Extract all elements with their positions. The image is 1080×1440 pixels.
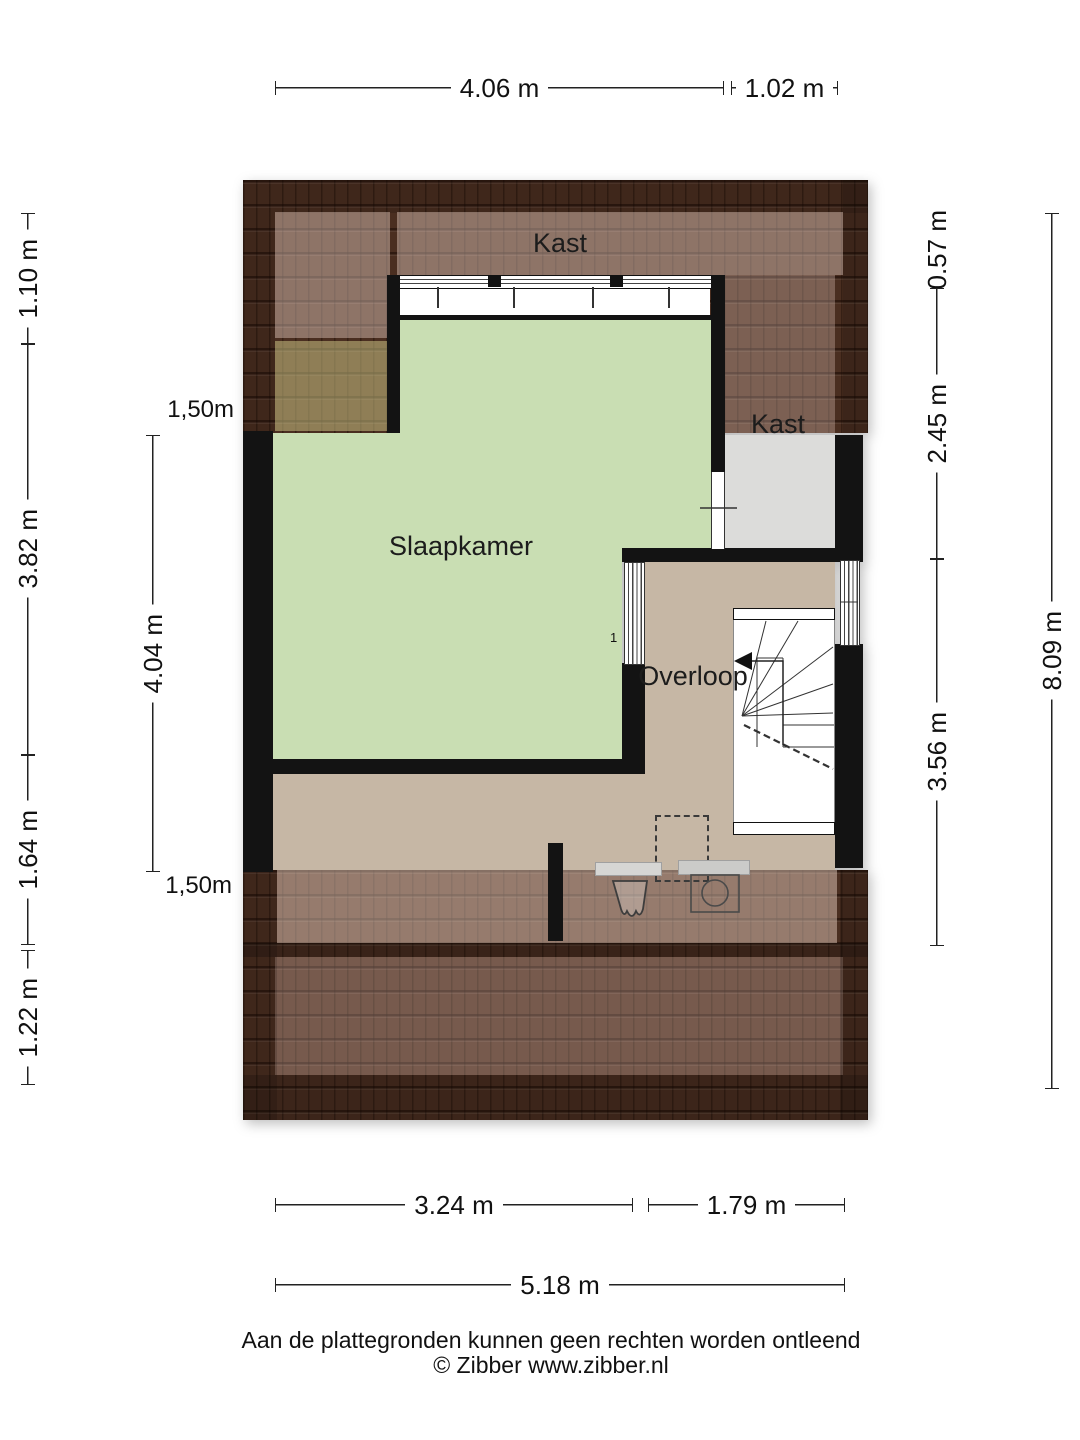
dim-left-2: 3.82 m — [21, 343, 35, 755]
dim-right-1: 0.57 m — [930, 210, 944, 290]
window-right — [840, 560, 860, 646]
floor-plan: Kast Kast Slaapkamer Overloop 1 — [0, 0, 1080, 1440]
dim-left-3: 1.64 m — [21, 755, 35, 945]
roof-top-right-margin — [843, 180, 868, 433]
knee-area-overlay — [275, 341, 387, 431]
window-interior — [624, 562, 645, 665]
roof-bottom-eave-shade — [243, 1075, 868, 1120]
room-label-kast-top: Kast — [500, 230, 620, 257]
room-kast-right-floor — [725, 435, 835, 548]
knee-label-top: 1,50m — [150, 398, 234, 422]
window-top-mullion-2 — [610, 275, 623, 287]
room-slaapkamer-upper — [400, 320, 711, 435]
wall-stub — [548, 843, 563, 941]
dim-right-outer: 8.09 m — [1045, 213, 1059, 1089]
wall-right-outer-upper — [835, 435, 863, 560]
stairs-bottom-landing — [733, 822, 835, 835]
room-slaapkamer-lower — [273, 548, 622, 759]
wall-slaapkamer-south — [273, 759, 645, 774]
window-tick-3 — [592, 287, 594, 308]
door-kast-opening — [711, 472, 725, 549]
dim-top-left: 4.06 m — [275, 81, 724, 95]
wall-right-outer-lower — [835, 644, 863, 868]
washbasin-shelf — [595, 862, 662, 876]
roof-bottom-medium-band — [275, 957, 843, 1075]
stairwell — [733, 608, 835, 835]
dim-bottom-right: 1.79 m — [648, 1198, 845, 1212]
dim-left-4: 1.22 m — [21, 950, 35, 1085]
zibber-copyright: © Zibber www.zibber.nl — [11, 1353, 1080, 1378]
dim-left-inner: 4.04 m — [146, 435, 160, 872]
window-tick-1 — [437, 287, 439, 308]
room-overloop-upper — [645, 562, 835, 608]
window-mark: 1 — [610, 631, 624, 644]
roof-top-row-shade — [243, 180, 868, 213]
stairs-top-landing — [733, 608, 835, 620]
dim-top-right: 1.02 m — [731, 81, 838, 95]
room-label-overloop: Overloop — [613, 663, 773, 690]
dim-bottom-total: 5.18 m — [275, 1278, 845, 1292]
knee-label-bottom: 1,50m — [148, 874, 232, 898]
dim-right-2: 2.45 m — [930, 288, 944, 560]
wall-window-right-pier — [711, 275, 725, 473]
dim-right-3: 3.56 m — [930, 558, 944, 946]
roof-top-left-margin — [243, 213, 275, 433]
room-overloop-lower — [273, 774, 645, 870]
wall-left-outer — [243, 431, 273, 872]
room-label-slaapkamer: Slaapkamer — [361, 533, 561, 560]
kast-top-overlay — [397, 212, 843, 275]
wall-window-left-pier — [387, 275, 400, 433]
dim-bottom-left: 3.24 m — [275, 1198, 633, 1212]
window-top-mullion-1 — [488, 275, 501, 287]
wall-overloop-north — [622, 548, 863, 562]
room-label-kast-right: Kast — [718, 411, 838, 438]
window-tick-4 — [668, 287, 670, 308]
under-window-strip — [400, 285, 710, 317]
footer-disclaimer: Aan de plattegronden kunnen geen rechten… — [11, 1328, 1080, 1353]
window-top-band — [400, 275, 711, 289]
washing-machine-shelf — [678, 860, 750, 875]
window-tick-2 — [513, 287, 515, 308]
kast-top-overlay-left — [275, 212, 390, 338]
roof-bottom-shadow-row — [243, 943, 868, 957]
dim-left-1: 1.10 m — [21, 213, 35, 345]
wall-knee-line — [400, 315, 711, 320]
